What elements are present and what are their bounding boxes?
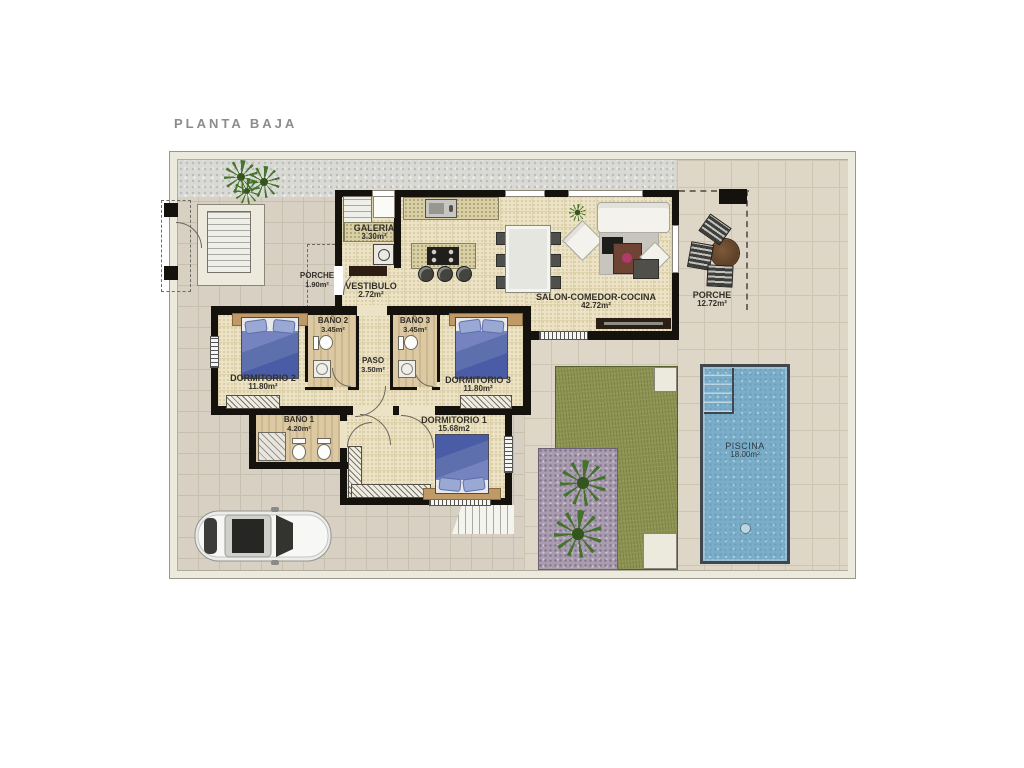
sink-icon xyxy=(398,360,416,378)
room-label-bano2: BAÑO 2 3.45m² xyxy=(318,317,348,334)
stool-icon xyxy=(418,266,434,282)
plant-icon xyxy=(569,204,586,221)
wall-bano3-dorm3 xyxy=(437,310,440,382)
tree-icon xyxy=(234,178,260,204)
room-label-bano1: BAÑO 1 4.20m² xyxy=(284,416,314,433)
wall-galeria-east xyxy=(394,192,401,268)
room-label-dormitorio2: DORMITORIO 2 11.80m² xyxy=(230,373,296,392)
tv-bench-icon xyxy=(596,318,671,329)
wall-bano2-south xyxy=(305,387,333,390)
porch-pillar xyxy=(719,189,747,204)
patio-chair-icon xyxy=(706,264,733,287)
toilet-bowl xyxy=(319,335,333,350)
closet-icon xyxy=(374,197,394,217)
window xyxy=(372,190,395,197)
floor-plan-page: PLANTA BAJA xyxy=(0,0,1024,768)
bed-icon xyxy=(241,317,299,379)
wall-paso-bano3 xyxy=(390,310,393,390)
opening-vestibulo-paso xyxy=(357,305,387,316)
window-hatched xyxy=(505,437,512,472)
plan-title: PLANTA BAJA xyxy=(174,116,297,131)
room-label-dormitorio3: DORMITORIO 3 11.80m² xyxy=(445,375,511,394)
tv-bench-detail xyxy=(604,322,663,325)
pillow-icon xyxy=(462,477,486,493)
bidet-icon xyxy=(316,438,330,460)
palm-icon xyxy=(554,510,602,558)
shower-icon xyxy=(259,433,285,460)
wall-bano3-south xyxy=(432,387,440,390)
window xyxy=(568,190,643,197)
room-label-paso: PASO 3.50m² xyxy=(361,357,385,374)
room-label-vestibulo: VESTIBULO 2.72m² xyxy=(345,281,397,300)
room-label-porche-entrada: PORCHE 1.90m² xyxy=(300,272,334,289)
window-hatched xyxy=(430,498,490,505)
gate-post xyxy=(164,266,178,280)
palm-icon xyxy=(560,460,606,506)
room-label-piscina: PISCINA 18.00m² xyxy=(725,441,765,460)
armchair-dark-icon xyxy=(633,259,659,279)
wardrobe-icon xyxy=(461,396,511,408)
bed-icon xyxy=(455,317,508,379)
pillow-icon xyxy=(272,319,295,334)
toilet-bowl xyxy=(292,444,306,460)
room-label-dormitorio1: DORMITORIO 1 15.68m2 xyxy=(421,415,487,434)
room-label-galeria: GALERIA 3.30m² xyxy=(354,223,395,242)
pillow-icon xyxy=(438,477,461,492)
wall-bano2-paso xyxy=(356,310,359,390)
window-hatched xyxy=(211,337,218,367)
wardrobe-icon xyxy=(352,485,430,497)
wardrobe-icon xyxy=(227,396,279,408)
pool-drain-icon xyxy=(741,524,750,533)
sink-basin xyxy=(429,203,444,214)
patio-table-icon xyxy=(711,239,739,267)
exterior-steps-icon xyxy=(452,505,514,534)
wall-bano1-west xyxy=(249,406,256,469)
entry-stairs-icon xyxy=(208,212,250,272)
toilet-icon xyxy=(291,438,305,460)
lawn-corner-pad xyxy=(655,368,676,391)
room-label-bano3: BAÑO 3 3.45m² xyxy=(400,317,430,334)
room-label-porche-lateral: PORCHE 12.72m² xyxy=(693,290,732,309)
blanket xyxy=(436,435,488,480)
faucet-icon xyxy=(449,205,453,212)
wall-bano1-south xyxy=(249,462,350,469)
flower-decor xyxy=(622,253,632,263)
bed-icon xyxy=(435,434,489,494)
dining-table-icon xyxy=(506,226,550,292)
kitchen-sink-icon xyxy=(426,200,456,217)
opening-bano1 xyxy=(340,421,347,448)
room-label-salon: SALON-COMEDOR-COCINA 42.72m² xyxy=(536,292,656,311)
front-door-opening xyxy=(334,266,343,295)
window-hatched xyxy=(540,332,587,339)
blanket xyxy=(242,331,298,378)
washer-icon xyxy=(374,245,393,264)
porch-boundary xyxy=(746,190,748,310)
bidet-bowl xyxy=(317,444,331,460)
hob-icon xyxy=(427,247,459,265)
blanket xyxy=(456,331,507,378)
wall-bano3-south xyxy=(390,387,417,390)
wall-dorm3-east xyxy=(523,306,531,415)
gate-post xyxy=(164,203,178,217)
stool-icon xyxy=(437,266,453,282)
pool-steps-icon xyxy=(704,368,734,414)
toilet-icon xyxy=(398,334,418,350)
washer-door xyxy=(378,249,390,261)
car-icon xyxy=(192,504,334,568)
window xyxy=(505,190,545,197)
window xyxy=(672,225,679,273)
stool-icon xyxy=(456,266,472,282)
sofa-icon xyxy=(597,202,670,233)
sink-icon xyxy=(313,360,331,378)
lawn-corner-pad xyxy=(644,534,676,568)
pillow-icon xyxy=(481,319,504,334)
toilet-bowl xyxy=(404,335,418,350)
console-table-icon xyxy=(349,266,387,276)
toilet-icon xyxy=(313,334,333,350)
